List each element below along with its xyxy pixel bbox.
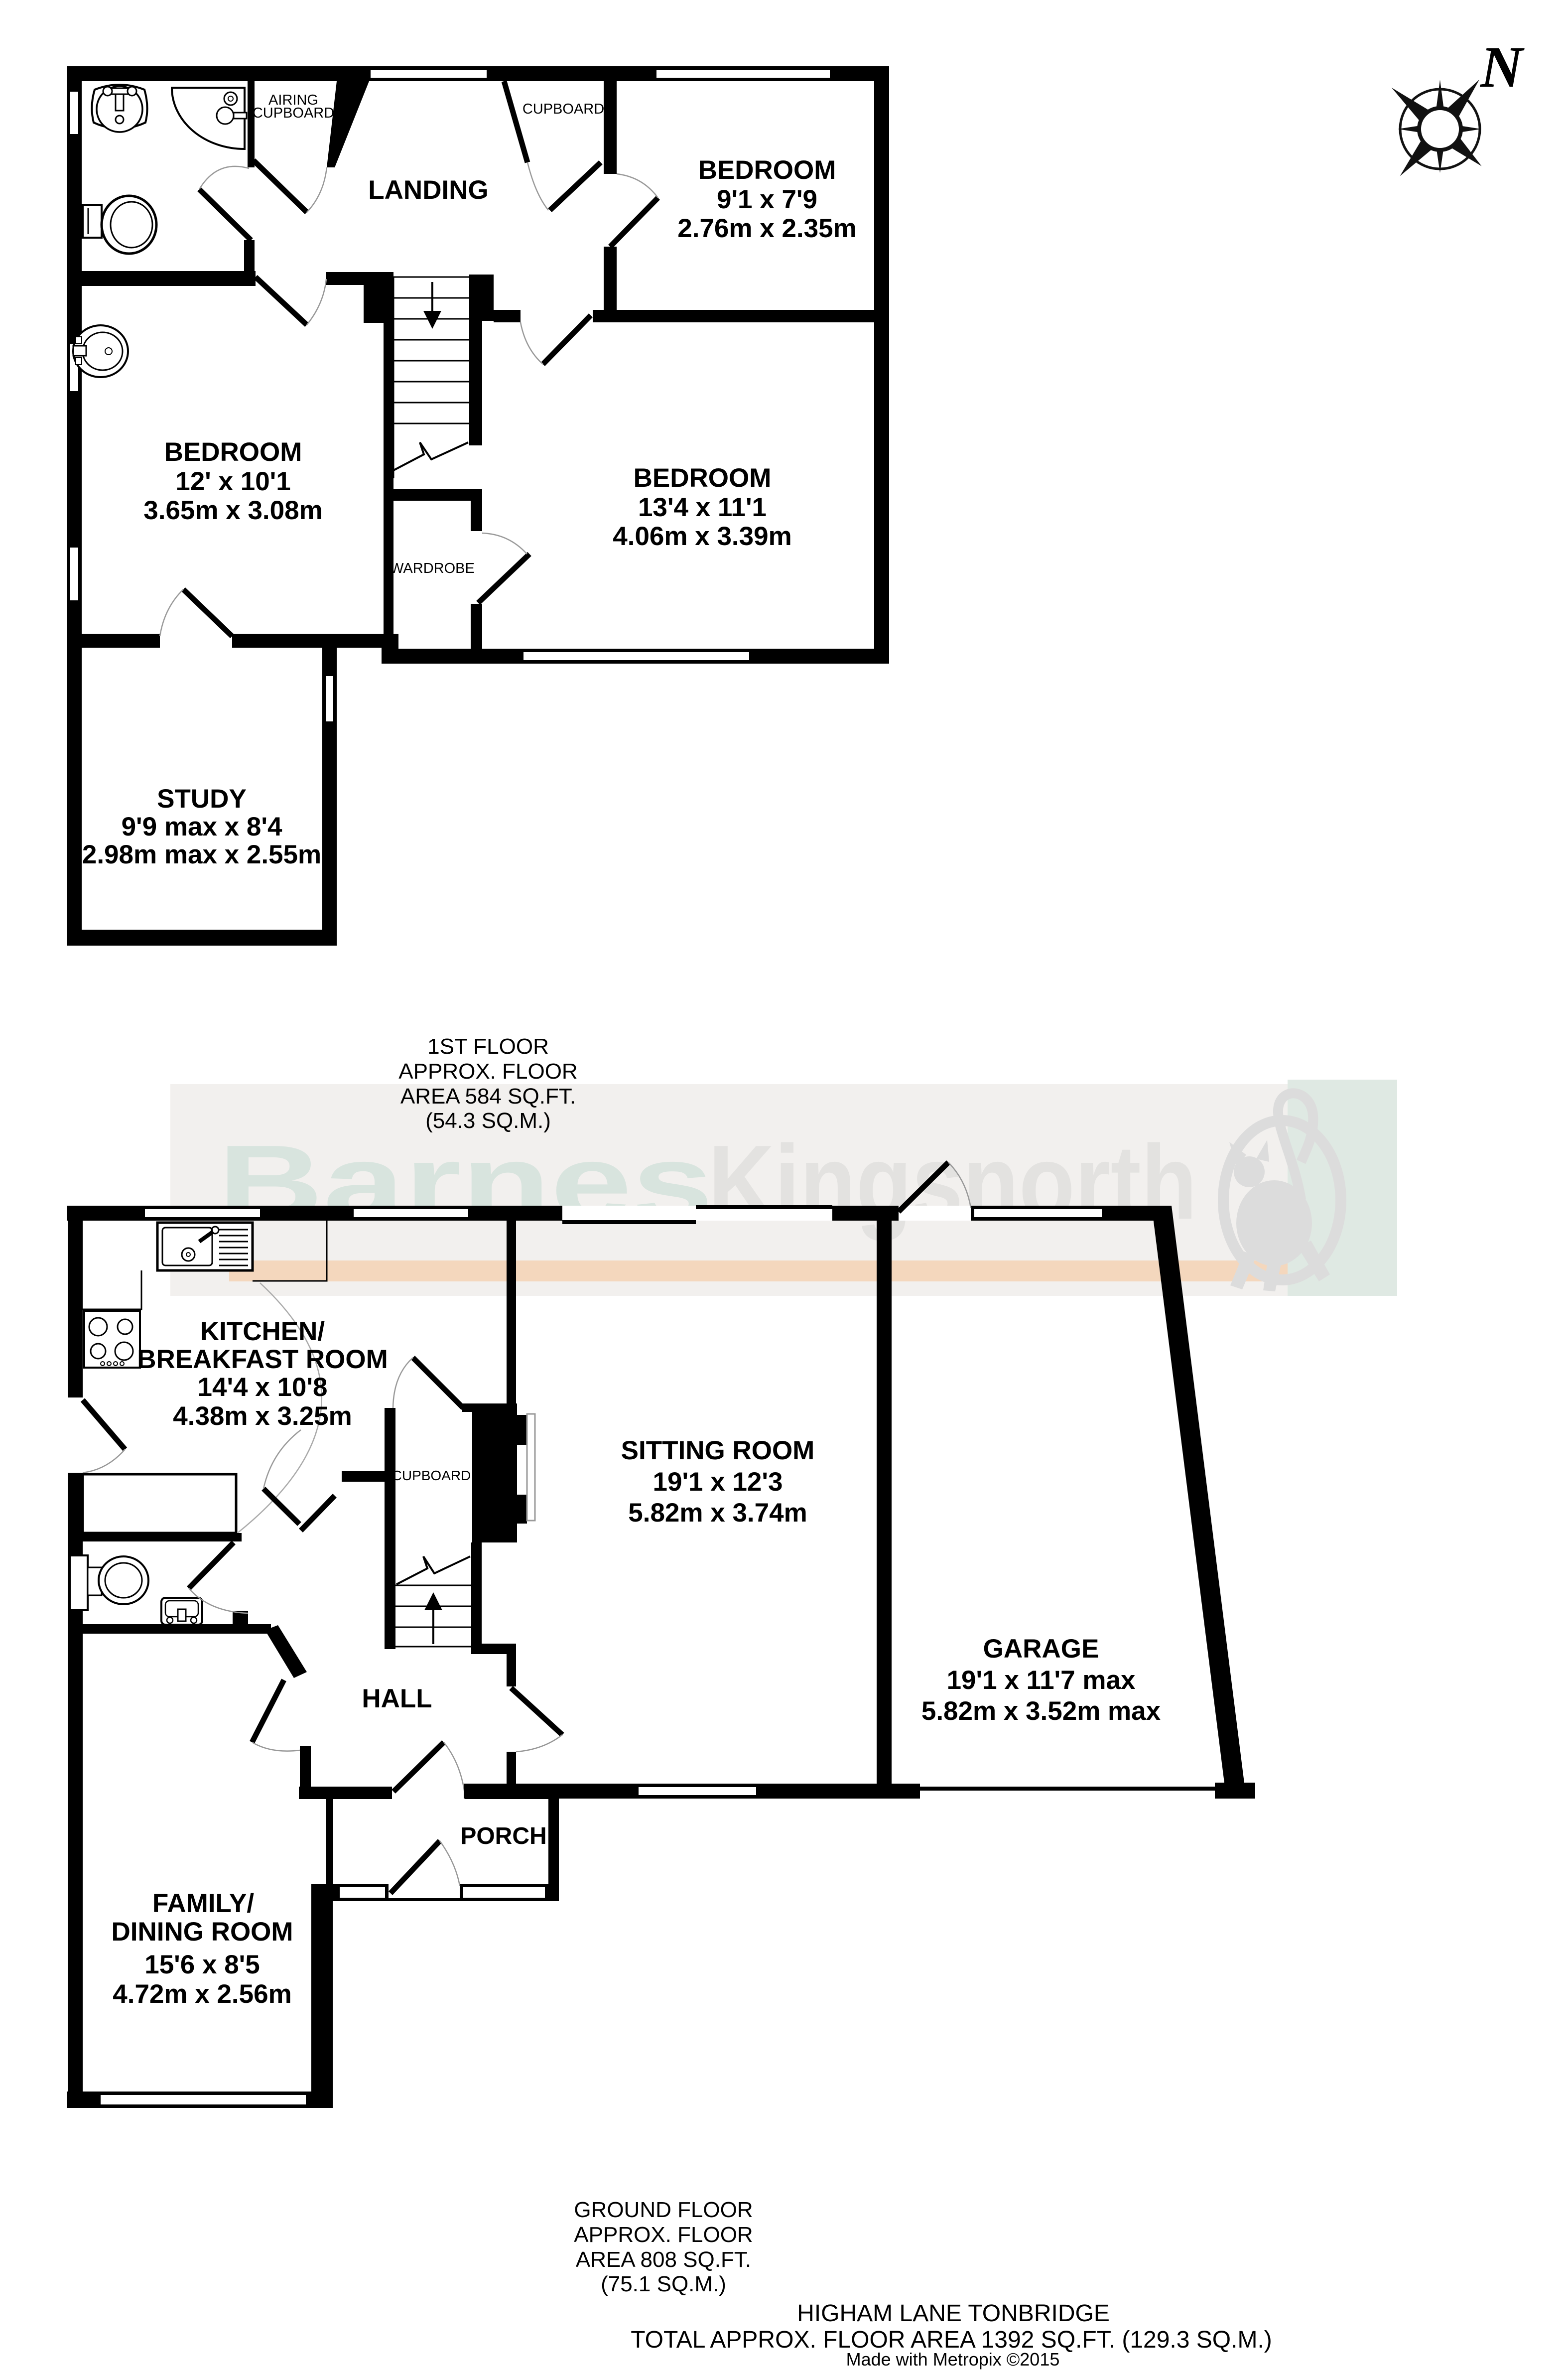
svg-text:4.38m x 3.25m: 4.38m x 3.25m — [173, 1401, 352, 1431]
svg-text:13'4 x 11'1: 13'4 x 11'1 — [638, 493, 767, 522]
svg-text:KITCHEN/: KITCHEN/ — [200, 1317, 325, 1346]
svg-text:(54.3 SQ.M.): (54.3 SQ.M.) — [425, 1109, 551, 1133]
svg-text:(75.1 SQ.M.): (75.1 SQ.M.) — [601, 2272, 726, 2296]
svg-text:HALL: HALL — [362, 1684, 432, 1713]
svg-text:CUPBOARD: CUPBOARD — [392, 1468, 471, 1483]
svg-text:2.98m max x 2.55m: 2.98m max x 2.55m — [82, 840, 321, 869]
svg-text:9'1 x 7'9: 9'1 x 7'9 — [717, 185, 817, 214]
svg-text:BEDROOM: BEDROOM — [698, 155, 836, 185]
svg-text:2.76m x 2.35m: 2.76m x 2.35m — [677, 214, 856, 243]
svg-text:CUPBOARD: CUPBOARD — [523, 101, 604, 117]
svg-text:12' x 10'1: 12' x 10'1 — [175, 467, 291, 496]
svg-text:GARAGE: GARAGE — [983, 1634, 1099, 1664]
svg-text:BREAKFAST ROOM: BREAKFAST ROOM — [137, 1345, 388, 1374]
svg-text:19'1 x 11'7 max: 19'1 x 11'7 max — [947, 1666, 1136, 1695]
svg-text:BEDROOM: BEDROOM — [634, 463, 772, 493]
svg-text:BEDROOM: BEDROOM — [164, 437, 302, 467]
svg-text:Made with Metropix ©2015: Made with Metropix ©2015 — [846, 2349, 1060, 2370]
svg-text:9'9 max x 8'4: 9'9 max x 8'4 — [122, 812, 282, 841]
svg-text:1ST FLOOR: 1ST FLOOR — [427, 1034, 549, 1059]
svg-text:Kingsnorth: Kingsnorth — [708, 1123, 1197, 1242]
svg-text:WARDROBE: WARDROBE — [390, 560, 475, 576]
svg-text:PORCH: PORCH — [460, 1823, 546, 1849]
svg-text:3.65m x 3.08m: 3.65m x 3.08m — [143, 496, 322, 525]
svg-text:STUDY: STUDY — [157, 784, 247, 814]
svg-text:4.06m x 3.39m: 4.06m x 3.39m — [613, 522, 791, 551]
svg-text:DINING ROOM: DINING ROOM — [111, 1917, 293, 1947]
svg-text:AREA 808 SQ.FT.: AREA 808 SQ.FT. — [576, 2247, 751, 2272]
svg-text:APPROX. FLOOR: APPROX. FLOOR — [574, 2223, 753, 2247]
svg-text:19'1 x 12'3: 19'1 x 12'3 — [653, 1467, 783, 1497]
svg-text:CUPBOARD: CUPBOARD — [253, 105, 334, 121]
svg-text:N: N — [1479, 34, 1525, 100]
svg-text:LANDING: LANDING — [368, 175, 488, 205]
svg-text:5.82m x 3.74m: 5.82m x 3.74m — [628, 1498, 807, 1528]
svg-text:14'4 x 10'8: 14'4 x 10'8 — [198, 1373, 328, 1402]
svg-text:FAMILY/: FAMILY/ — [152, 1889, 254, 1918]
svg-text:APPROX. FLOOR: APPROX. FLOOR — [398, 1059, 577, 1084]
svg-text:SITTING ROOM: SITTING ROOM — [621, 1436, 815, 1465]
svg-text:GROUND FLOOR: GROUND FLOOR — [574, 2198, 753, 2222]
svg-text:5.82m x 3.52m max: 5.82m x 3.52m max — [921, 1696, 1161, 1726]
svg-text:HIGHAM LANE TONBRIDGE: HIGHAM LANE TONBRIDGE — [797, 2300, 1110, 2327]
svg-text:4.72m x 2.56m: 4.72m x 2.56m — [113, 1979, 291, 2009]
svg-text:AREA 584 SQ.FT.: AREA 584 SQ.FT. — [400, 1084, 576, 1109]
svg-text:15'6 x 8'5: 15'6 x 8'5 — [144, 1950, 260, 1979]
